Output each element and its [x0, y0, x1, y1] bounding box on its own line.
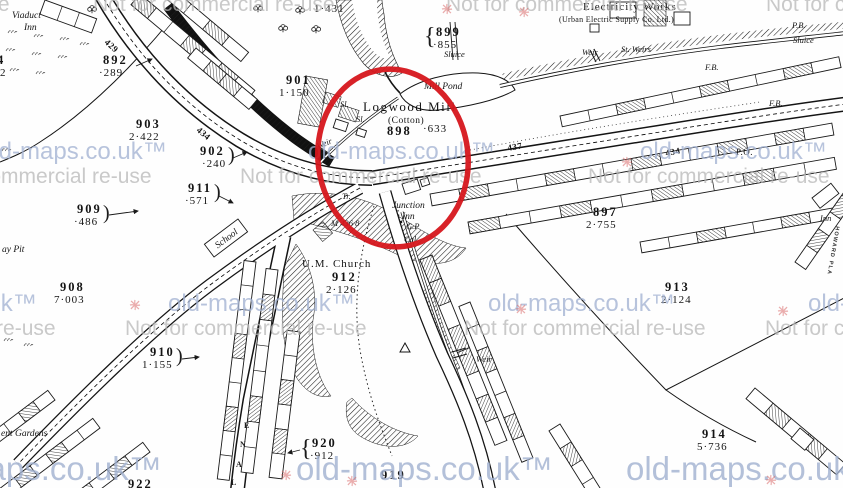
- sluice-abbrev: Sl.: [340, 99, 349, 109]
- parcel-acre: 2·755: [586, 219, 617, 231]
- parcel-acre: ·240: [202, 158, 226, 170]
- school-building: School: [204, 219, 247, 257]
- post-office-label: P.O.: [736, 147, 753, 157]
- parcel-num: 897: [593, 205, 618, 219]
- building: [420, 178, 430, 187]
- terrace-row: [549, 424, 605, 488]
- parcel-num: 903: [136, 117, 161, 131]
- parcel-num: 914: [702, 427, 727, 441]
- parcel-num: 910: [150, 345, 175, 359]
- benchmark-label: M 436·8: [330, 218, 360, 228]
- brace: ): [214, 181, 221, 203]
- weir-label: Weir: [582, 47, 598, 57]
- road-number: 429: [103, 37, 121, 54]
- plank-bridge-label: P.B.: [791, 20, 806, 30]
- logwood-mill-label: Logwood Mill: [363, 99, 456, 114]
- parcel-acre: 1·150: [279, 87, 310, 99]
- edge-parcel-fragment: 2: [0, 67, 7, 79]
- parcel-num: 892: [103, 53, 128, 67]
- parcel-acre: 1·431: [314, 3, 345, 15]
- lane-letter: L: [231, 478, 236, 487]
- parcel-num: 908: [60, 280, 85, 294]
- weir-label: Weir: [476, 354, 492, 364]
- parcel-acre: ·289: [99, 67, 123, 79]
- triangle-mark: [400, 343, 410, 352]
- electricity-works-label: Electricity Works: [583, 1, 677, 13]
- parcel-acre: 2·422: [129, 131, 160, 143]
- parcel-num: 899: [436, 25, 461, 39]
- parcel-num: 909: [77, 202, 102, 216]
- lane-letter: A: [236, 460, 242, 469]
- building: [333, 119, 348, 132]
- viaduct-inn-label: Viaduct: [12, 11, 41, 21]
- terrace-row: [40, 0, 97, 33]
- parcel-acre: ·571: [185, 195, 209, 207]
- terrace-row: [746, 388, 843, 475]
- brace: ): [176, 345, 183, 367]
- logwood-cotton-label: (Cotton): [388, 115, 424, 126]
- parcel-acre: 7·003: [54, 294, 85, 306]
- terrace-row: [269, 330, 300, 478]
- parcel-num: 912: [332, 270, 357, 284]
- footbridge-label: F.B.: [768, 98, 783, 108]
- parcel-acre: 5·736: [697, 441, 728, 453]
- electricity-works-sub-label: (Urban Electric Supply Co. Ltd.): [559, 15, 674, 24]
- sluice-label: Sluice: [444, 49, 465, 59]
- parcel-num: 902: [200, 144, 225, 158]
- viaduct-inn-label: Inn: [23, 23, 37, 33]
- lane-letter: E: [244, 421, 249, 430]
- brace: ): [228, 144, 235, 166]
- um-church-label: U.M. Church: [302, 258, 371, 270]
- gardens-label: ent Gardens: [1, 429, 48, 439]
- parcel-num: 911: [188, 181, 212, 195]
- building: [356, 128, 367, 137]
- building: [674, 12, 690, 25]
- clay-pit-label: ay Pit: [2, 245, 25, 255]
- parcel-num: 920: [312, 436, 337, 450]
- map-canvas[interactable]: School 1·431 892 ·289 { 899 ·855 901 1·1…: [0, 0, 843, 488]
- guide-post-label: G.P: [406, 221, 419, 231]
- lane-letter: N: [240, 440, 246, 449]
- building: [590, 24, 599, 32]
- weir-label: Weir: [315, 135, 334, 150]
- parcel-acre: 2·124: [661, 294, 692, 306]
- parcel-acre: 1·155: [142, 359, 173, 371]
- parcel-acre: ·486: [74, 216, 98, 228]
- trough-label: Tr.: [342, 191, 351, 201]
- inn-label: Inn: [819, 213, 831, 223]
- mill-pond-label: Mill Pond: [423, 82, 463, 92]
- footbridge-label: F.B.: [704, 62, 719, 72]
- parcel-num: 922: [128, 477, 153, 488]
- parcel-num: 919: [381, 468, 406, 482]
- st-weirs-label: St. Weirs: [621, 44, 652, 54]
- parcel-num: 898: [387, 124, 412, 138]
- sluice-label: Sluice: [793, 35, 814, 45]
- building: [402, 179, 421, 194]
- parcel-acre: ·912: [310, 450, 334, 462]
- parcel-acre: 2·126: [326, 284, 357, 296]
- sluice-abbrev: Sl.: [356, 114, 365, 124]
- edge-parcel-fragment: 4: [0, 53, 5, 67]
- junction-inn-label: Junction: [392, 201, 425, 211]
- parcel-num: 913: [665, 280, 690, 294]
- parcel-acre: ·633: [423, 123, 447, 135]
- map-viewport[interactable]: School 1·431 892 ·289 { 899 ·855 901 1·1…: [0, 0, 843, 488]
- parcel-num: 901: [286, 73, 311, 87]
- brace: ): [103, 202, 110, 224]
- south-bank-hachure-3: [346, 398, 418, 446]
- cal-label: Cal.: [404, 234, 418, 244]
